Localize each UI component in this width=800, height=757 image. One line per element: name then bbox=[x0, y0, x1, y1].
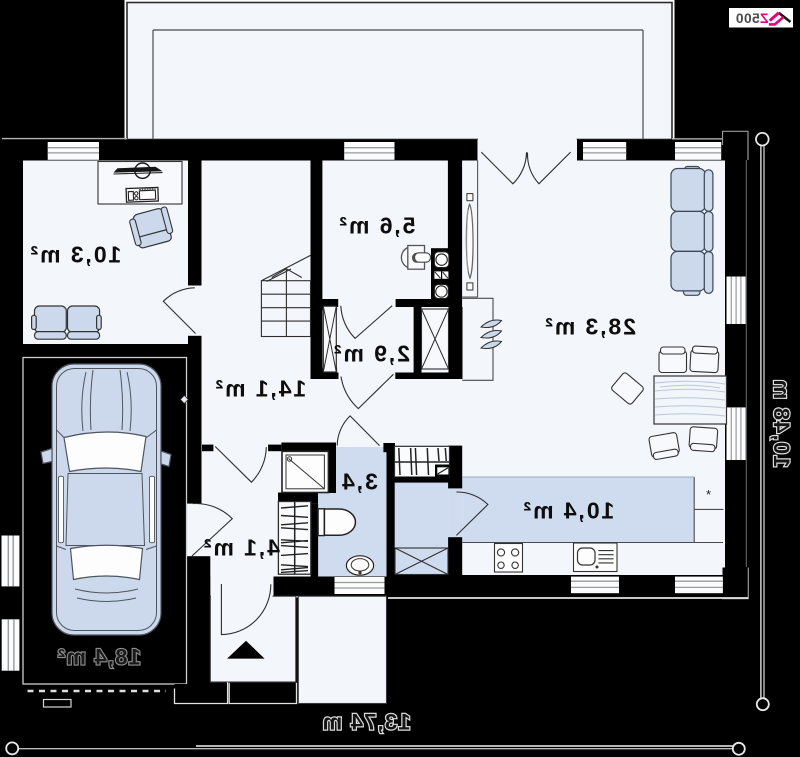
svg-text:5,6 m²: 5,6 m² bbox=[338, 213, 416, 239]
svg-text:4,1 m²: 4,1 m² bbox=[202, 535, 280, 561]
svg-text:14,1 m²: 14,1 m² bbox=[214, 376, 307, 402]
svg-text:13,74 m: 13,74 m bbox=[321, 710, 410, 735]
svg-text:Z500: Z500 bbox=[735, 11, 768, 26]
svg-text:10,3 m²: 10,3 m² bbox=[29, 242, 122, 268]
svg-text:10,48 m: 10,48 m bbox=[769, 378, 794, 467]
svg-text:10,4 m²: 10,4 m² bbox=[522, 498, 615, 524]
svg-text:3,4: 3,4 bbox=[340, 469, 378, 495]
svg-text:28,3 m²: 28,3 m² bbox=[543, 314, 636, 340]
svg-text:2,9 m²: 2,9 m² bbox=[332, 341, 410, 367]
svg-text:*: * bbox=[706, 487, 711, 502]
svg-text:18,4 m²: 18,4 m² bbox=[57, 645, 141, 670]
